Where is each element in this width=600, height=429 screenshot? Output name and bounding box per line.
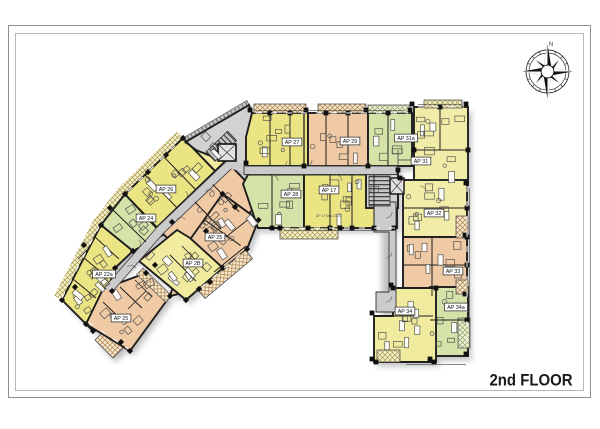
svg-text:AP 31a: AP 31a [397, 136, 415, 142]
svg-text:AP 25: AP 25 [114, 316, 129, 322]
svg-text:AP 22a: AP 22a [95, 272, 113, 278]
svg-text:AP 31: AP 31 [414, 159, 429, 165]
svg-text:AP 28: AP 28 [284, 192, 299, 198]
svg-text:AP 32: AP 32 [427, 211, 442, 217]
svg-text:AP 17 flats 31-41: AP 17 flats 31-41 [316, 214, 342, 218]
svg-text:AP 29: AP 29 [343, 139, 358, 145]
svg-text:AP 17: AP 17 [322, 188, 337, 194]
svg-text:N: N [549, 42, 553, 48]
svg-text:AP 34a: AP 34a [447, 305, 465, 311]
svg-text:AP 33: AP 33 [446, 269, 461, 275]
svg-text:AP 24: AP 24 [139, 216, 154, 222]
svg-text:AP 25: AP 25 [208, 235, 223, 241]
svg-text:AP 26: AP 26 [159, 187, 174, 193]
svg-text:AP 27: AP 27 [285, 140, 300, 146]
svg-text:2nd FLOOR: 2nd FLOOR [490, 372, 573, 390]
svg-text:AP 2B: AP 2B [185, 261, 201, 267]
svg-text:AP 34: AP 34 [398, 309, 413, 315]
